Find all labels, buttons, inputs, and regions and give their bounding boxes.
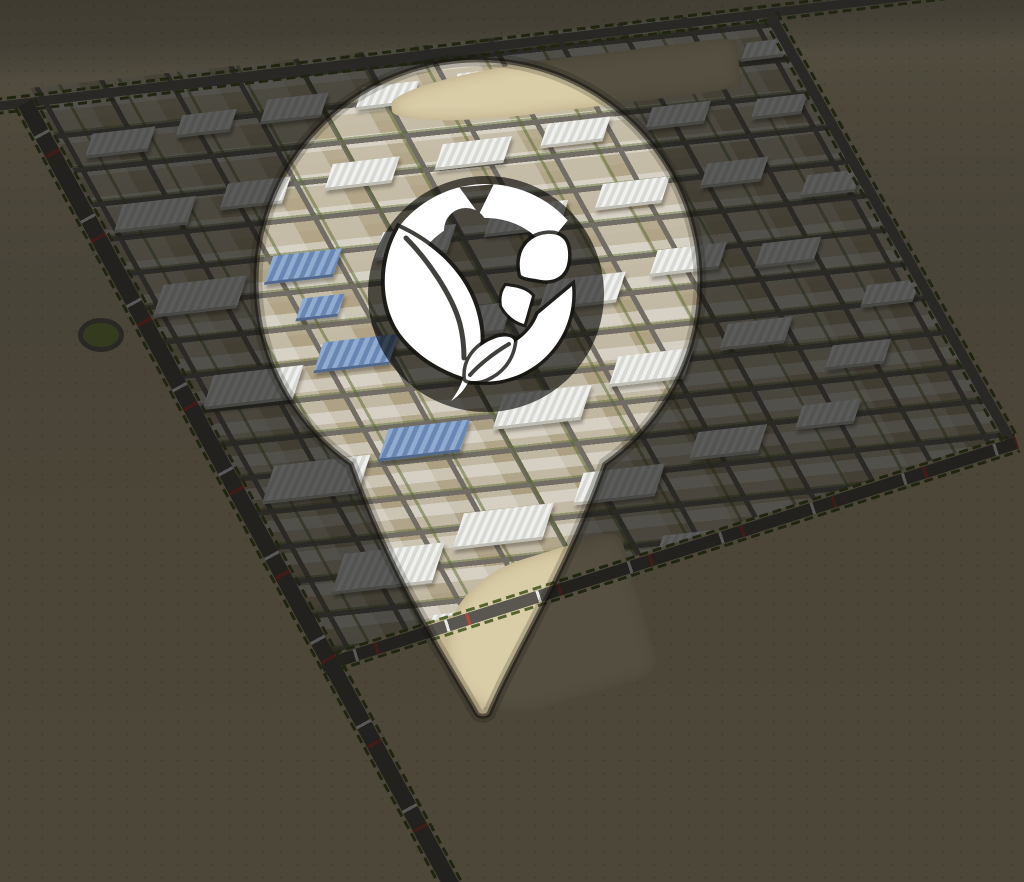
pin-and-logo-overlay <box>0 0 1024 882</box>
eco-industry-logo <box>368 176 604 412</box>
darkness-veil <box>0 0 1024 882</box>
poster-canvas <box>0 0 1024 882</box>
